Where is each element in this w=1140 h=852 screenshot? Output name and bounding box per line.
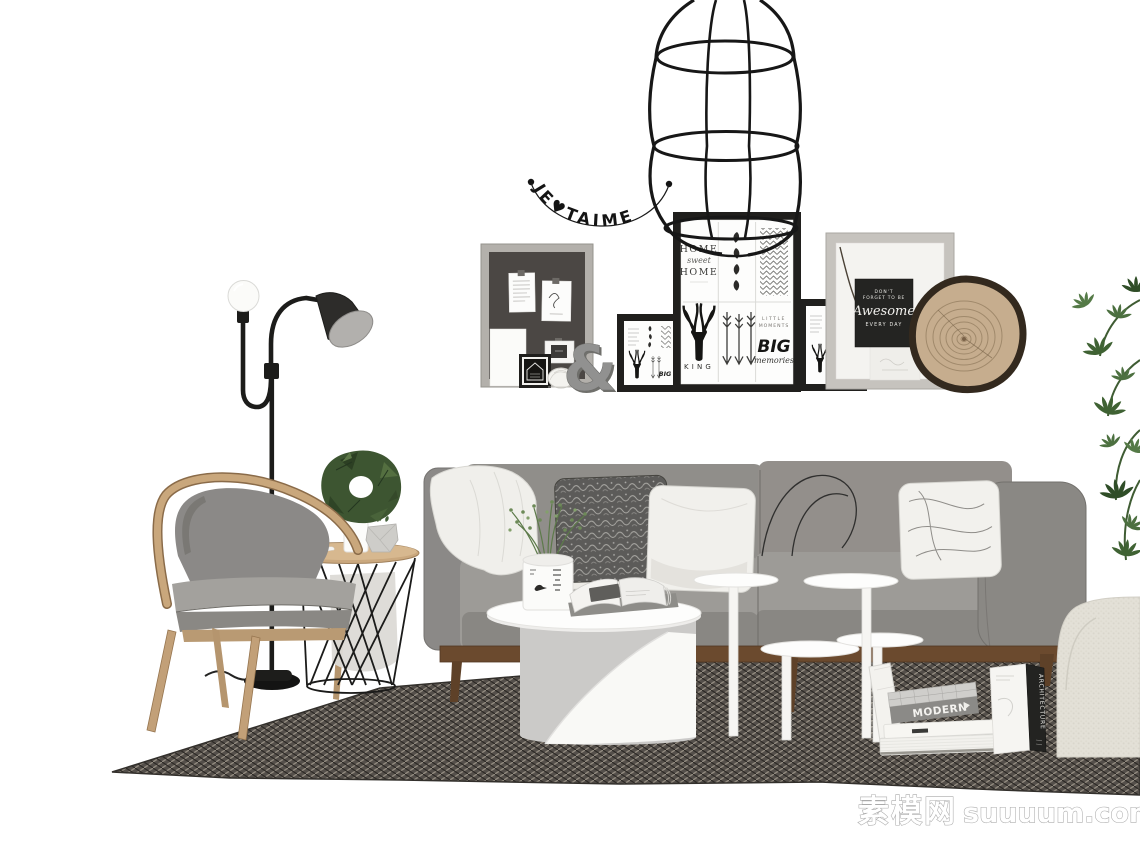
wood-slice-decor bbox=[912, 279, 1023, 390]
garland-text: JE♥TAIME bbox=[529, 180, 637, 231]
pinned-card bbox=[509, 270, 536, 312]
ampersand-text: & bbox=[563, 332, 617, 405]
poster-big-line1: LITTLE bbox=[762, 316, 786, 322]
lamp-cone-shade bbox=[316, 293, 379, 355]
furniture-scene: & & BIG HOME sweet HOME KING LITTLE MOM bbox=[0, 0, 1140, 852]
poster-big-line2: MOMENTS bbox=[759, 323, 790, 329]
awesome-line1: DON'T bbox=[874, 289, 893, 295]
poster-big-line3: BIG bbox=[757, 337, 790, 357]
ampersand-letter: & & bbox=[563, 332, 619, 407]
poster-big-line4: memories bbox=[754, 356, 794, 365]
awesome-line4: EVERY DAY bbox=[865, 322, 902, 328]
poster-home-line3: HOME bbox=[680, 267, 719, 278]
lamp-globe-bulb bbox=[228, 281, 259, 312]
awesome-print: DON'T FORGET TO BE Awesome EVERY DAY bbox=[852, 279, 915, 347]
watermark-domain: suuuum.com bbox=[963, 798, 1140, 829]
white-planter bbox=[523, 560, 573, 610]
poster-home-line2: sweet bbox=[687, 256, 711, 265]
home-sweet-home-mini-frame bbox=[519, 354, 551, 388]
pinned-card bbox=[542, 278, 572, 321]
scribble-pillow bbox=[898, 480, 1001, 579]
mini-big-label: BIG bbox=[659, 370, 672, 378]
awesome-line3: Awesome bbox=[852, 304, 915, 319]
mini-deer-frame: BIG bbox=[617, 314, 681, 392]
nesting-table-top bbox=[837, 633, 923, 647]
lamp-base bbox=[252, 670, 292, 681]
scene-canvas: & & BIG HOME sweet HOME KING LITTLE MOM bbox=[0, 0, 1140, 852]
svg-text:JE♥TAIME: JE♥TAIME bbox=[529, 180, 637, 231]
nesting-table-top bbox=[804, 574, 898, 589]
poster-king-label: KING bbox=[684, 363, 714, 371]
awesome-line2: FORGET TO BE bbox=[863, 295, 905, 301]
watermark-brand: 素模网 bbox=[858, 794, 957, 830]
architecture-book: ARCHITECTURE bbox=[990, 664, 1046, 754]
armchair-leg bbox=[147, 630, 176, 732]
nesting-table-top bbox=[694, 573, 778, 587]
watermark: 素模网 suuuum.com bbox=[858, 794, 1140, 830]
cream-boucle-armchair bbox=[1057, 597, 1140, 757]
wooden-armchair bbox=[147, 477, 358, 740]
